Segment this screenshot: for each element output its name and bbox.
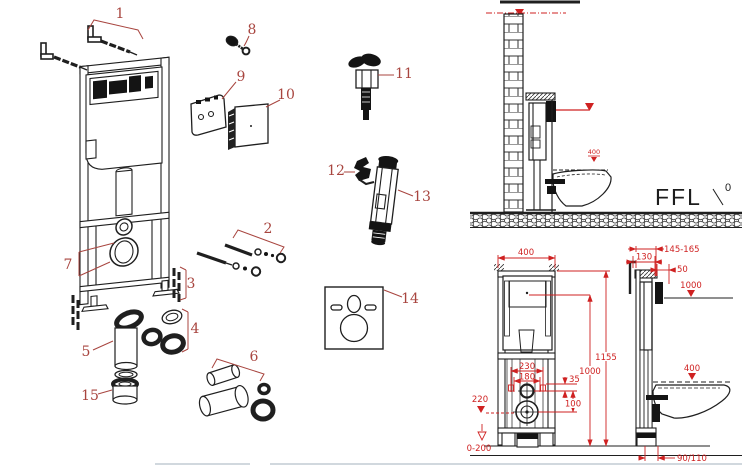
part-label-8: 8 bbox=[248, 22, 257, 38]
dim-height-1000: 1000 bbox=[579, 367, 601, 377]
part-label-13: 13 bbox=[413, 189, 431, 205]
dim-fixing-180: 180 bbox=[519, 373, 535, 383]
dim-wall-range: 145-165 bbox=[664, 245, 700, 255]
part-label-1: 1 bbox=[116, 6, 125, 22]
part-label-12: 12 bbox=[327, 163, 345, 179]
part-label-9: 9 bbox=[237, 69, 246, 85]
part-12-clip bbox=[354, 157, 374, 184]
elevation-seat-level: 400 bbox=[588, 148, 600, 156]
part-label-4: 4 bbox=[191, 321, 200, 337]
part-10-access-plate bbox=[228, 104, 268, 150]
dim-button-level-1000: 1000 bbox=[680, 281, 702, 291]
part-5-pan-elbow bbox=[114, 309, 143, 379]
part-label-2: 2 bbox=[264, 221, 273, 237]
part-label-7: 7 bbox=[64, 257, 73, 273]
dim-outlet-100: 100 bbox=[565, 400, 581, 410]
dim-panel-50: 50 bbox=[677, 265, 688, 275]
dim-seat-height-400: 400 bbox=[684, 364, 700, 374]
part-label-15: 15 bbox=[81, 388, 99, 404]
part-4-seal-rings bbox=[142, 308, 185, 354]
part-14-insulation-gasket bbox=[325, 287, 383, 349]
part-2-fixing-kit bbox=[197, 245, 285, 276]
dim-height-1155: 1155 bbox=[595, 353, 617, 363]
dim-feet-0-200: 0-200 bbox=[467, 444, 492, 454]
dim-outlet-height-220: 220 bbox=[472, 395, 488, 405]
wall-hung-pan-dim-side bbox=[646, 382, 730, 422]
dim-depth-130: 130 bbox=[636, 253, 652, 263]
part-label-11: 11 bbox=[395, 66, 413, 82]
part-9-gasket-plate bbox=[191, 95, 226, 135]
dim-outlet-pipe: 90/110 bbox=[677, 454, 707, 464]
ffl-label: FFL bbox=[655, 184, 702, 210]
dim-front-width: 400 bbox=[518, 248, 534, 258]
frame-assembly bbox=[80, 56, 179, 311]
part-label-10: 10 bbox=[277, 87, 295, 103]
part-label-14: 14 bbox=[401, 291, 419, 307]
part-11-fill-valve bbox=[347, 52, 382, 120]
part-8-screw-nut bbox=[225, 34, 250, 54]
part-label-6: 6 bbox=[250, 349, 259, 365]
dim-fixing-230: 230 bbox=[519, 362, 535, 372]
ffl-zero-level: 0 bbox=[725, 182, 731, 194]
part-15-reducer bbox=[113, 380, 137, 405]
technical-drawing: 1 2 3 4 5 6 7 8 9 10 11 12 13 14 15 bbox=[0, 0, 742, 469]
diagram-canvas: 1 2 3 4 5 6 7 8 9 10 11 12 13 14 15 bbox=[0, 0, 742, 469]
part-6-outlet-pipes bbox=[197, 364, 273, 419]
part-label-5: 5 bbox=[82, 344, 91, 360]
part-label-3: 3 bbox=[187, 276, 196, 292]
part-13-flush-valve bbox=[367, 155, 400, 247]
wall-hung-pan-side bbox=[545, 170, 611, 206]
